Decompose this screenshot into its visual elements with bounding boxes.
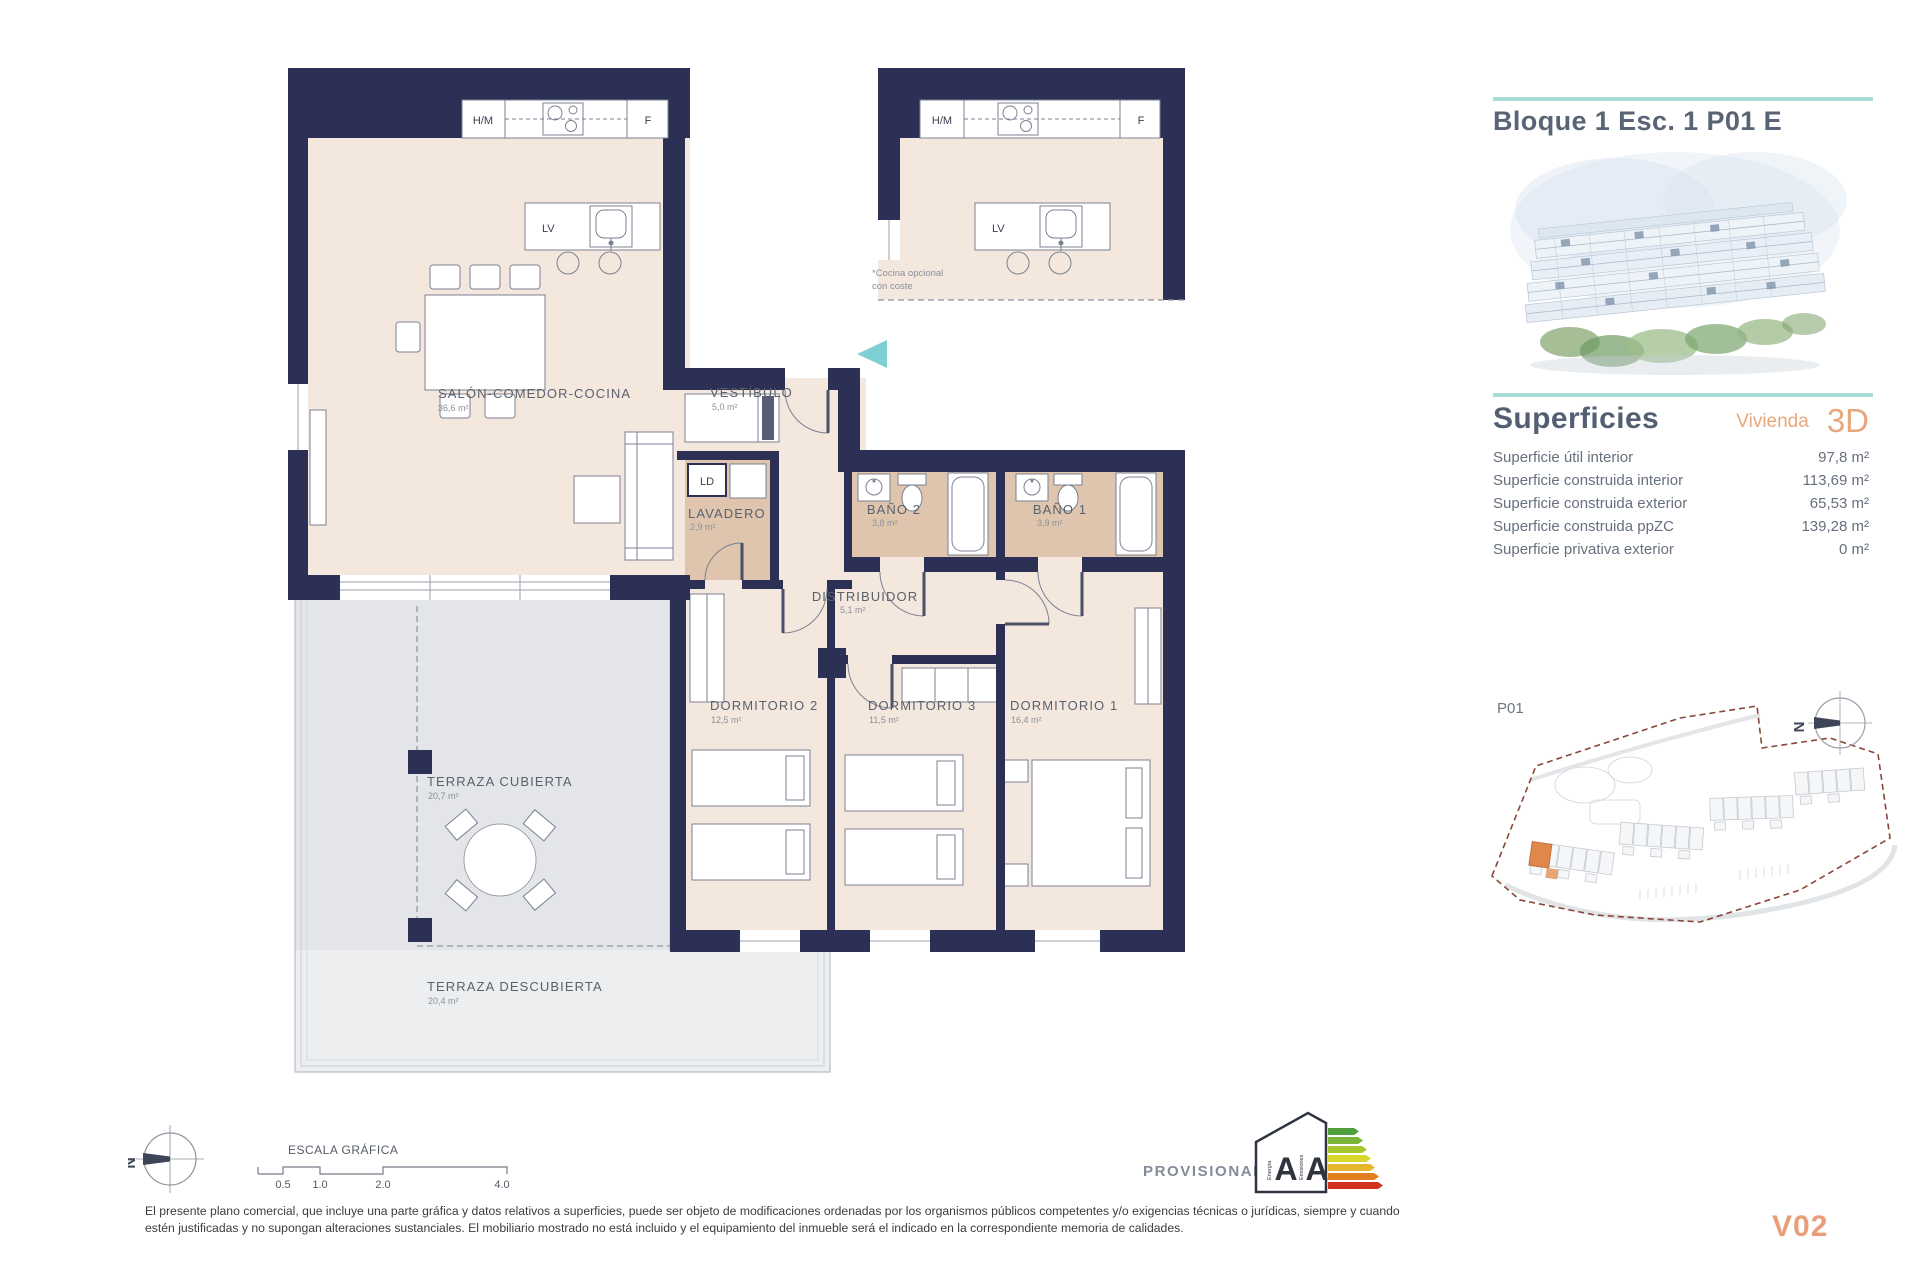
note-cocina-1: *Cocina opcional [872,268,943,279]
emissions-word: Emisiones [1299,1154,1305,1180]
label-hm: H/M [473,115,493,127]
row-value: 139,28 m² [1801,515,1869,538]
table-row: Superficie privativa exterior0 m² [1493,538,1869,561]
superficies-title: Superficies [1493,402,1659,436]
scale-bar: ESCALA GRÁFICA 0.5 1.0 2.0 4.0 [250,1130,520,1195]
room-bano2: BAÑO 2 [867,502,921,517]
label-ld: LD [700,476,714,488]
label-lv-2: LV [992,223,1005,235]
siteplan-boundary [1492,706,1890,922]
compass-n-letter: N [1791,722,1808,733]
row-label: Superficie útil interior [1493,446,1818,469]
teal-divider-superficies [1493,393,1873,397]
table-row: Superficie construida interior113,69 m² [1493,469,1869,492]
label-f-2: F [1138,115,1145,127]
room-lavadero-area: 2,9 m² [690,522,716,532]
superficies-subtitle: Vivienda [1736,411,1809,436]
row-value: 97,8 m² [1818,446,1869,469]
label-f: F [645,115,652,127]
room-dorm3-area: 11,5 m² [869,715,899,725]
scale-tick: 2.0 [375,1179,390,1191]
row-label: Superficie construida exterior [1493,492,1810,515]
energy-letter: A [1274,1151,1297,1187]
entry-arrow-icon [857,340,887,368]
ld-box: LD [688,464,726,496]
teal-divider-top [1493,97,1873,101]
terrace-column [408,750,432,774]
room-distribuidor: DISTRIBUIDOR [812,589,918,604]
row-value: 0 m² [1839,538,1869,561]
scale-tick: 0.5 [275,1179,290,1191]
building-render-image [1500,135,1850,390]
room-bano1-area: 3,9 m² [1037,518,1063,528]
room-salon: SALÓN-COMEDOR-COCINA [438,386,631,401]
row-label: Superficie privativa exterior [1493,538,1839,561]
siteplan-gardens [1505,715,1895,920]
energy-scale-bars [1328,1128,1383,1189]
room-bano2-area: 3,8 m² [872,518,898,528]
scale-tick: 4.0 [494,1179,509,1191]
legal-disclaimer: El presente plano comercial, que incluye… [145,1203,1407,1237]
room-vestibulo-area: 5,0 m² [712,402,738,412]
room-vestibulo: VESTÍBULO [710,385,793,400]
table-row: Superficie construida exterior65,53 m² [1493,492,1869,515]
provisional-label: PROVISIONAL [1143,1163,1264,1180]
room-terraza-descubierta: TERRAZA DESCUBIERTA [427,979,603,994]
row-label: Superficie construida interior [1493,469,1803,492]
scale-tick: 1.0 [312,1179,327,1191]
room-dorm1: DORMITORIO 1 [1010,698,1118,713]
room-dorm2-area: 12,5 m² [711,715,742,725]
row-label: Superficie construida ppZC [1493,515,1801,538]
table-row: Superficie construida ppZC139,28 m² [1493,515,1869,538]
room-salon-area: 36,6 m² [438,403,469,413]
room-terraza-cubierta-area: 20,7 m² [428,791,459,801]
emissions-letter: A [1305,1151,1328,1187]
room-terraza-cubierta: TERRAZA CUBIERTA [427,774,573,789]
site-plan: N [1490,685,1910,940]
energy-word: Energía [1267,1160,1273,1180]
version-label: V02 [1772,1210,1828,1244]
room-distribuidor-area: 5,1 m² [840,605,866,615]
siteplan-compass: N [1791,691,1872,755]
superficies-header: Superficies Vivienda 3D [1493,402,1869,436]
label-lv: LV [542,223,555,235]
plan-compass: N [128,1122,212,1200]
label-hm-2: H/M [932,115,952,127]
compass-n-letter: N [128,1157,139,1169]
kitchen-counter: H/M F H/M F [462,100,1160,138]
room-terraza-descubierta-area: 20,4 m² [428,996,459,1006]
siteplan-buildings [1528,768,1866,885]
row-value: 65,53 m² [1810,492,1869,515]
room-dorm2: DORMITORIO 2 [710,698,818,713]
room-dorm1-area: 16,4 m² [1011,715,1042,725]
terrace-column [408,918,432,942]
page-title: Bloque 1 Esc. 1 P01 E [1493,106,1873,137]
table-row: Superficie útil interior97,8 m² [1493,446,1869,469]
superficies-3d-badge: 3D [1827,406,1869,436]
row-value: 113,69 m² [1803,469,1869,492]
scale-title: ESCALA GRÁFICA [288,1142,398,1157]
energy-rating-icon: Energía A Emisiones A [1248,1102,1388,1200]
vegetation [1530,313,1826,375]
room-bano1: BAÑO 1 [1033,502,1087,517]
floor-plan: H/M F H/M F *Cocina opcional con coste L… [280,60,1200,1090]
room-dorm3: DORMITORIO 3 [868,698,976,713]
note-cocina-2: con coste [872,281,913,292]
room-lavadero: LAVADERO [688,506,766,521]
superficies-table: Superficie útil interior97,8 m² Superfic… [1493,446,1869,561]
